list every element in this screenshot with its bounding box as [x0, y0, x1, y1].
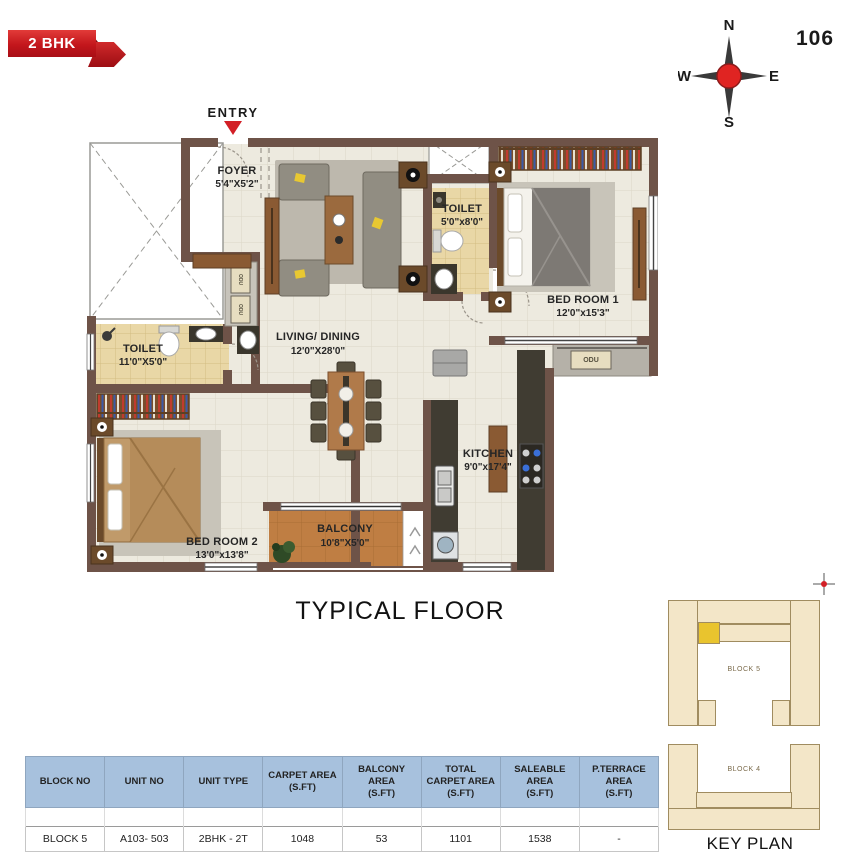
key-plan-block-4: BLOCK 4: [668, 744, 830, 830]
bhk-ribbon-badge: 2 BHK: [8, 30, 96, 57]
header-unit-no: UNIT NO: [105, 757, 184, 808]
key-plan: BLOCK 5 BLOCK 4 KEY PLAN: [660, 572, 864, 862]
compass-center-dot: [717, 64, 741, 88]
key-plan-compass-icon: [812, 572, 836, 596]
cell-saleable-area: 1538: [500, 827, 579, 852]
header-unit-type: UNIT TYPE: [184, 757, 263, 808]
room-dims-toilet-1: 5'0"x8'0": [441, 217, 483, 228]
room-dims-balcony: 10'8"X5'0": [321, 538, 370, 549]
header-total-carpet-area: TOTAL CARPET AREA (S.FT): [421, 757, 500, 808]
area-table-header-row: BLOCK NO UNIT NO UNIT TYPE CARPET AREA (…: [26, 757, 659, 808]
room-label-bedroom-2: BED ROOM 2: [186, 536, 258, 548]
key-plan-block-5: BLOCK 5: [668, 600, 830, 732]
room-dims-bedroom-2: 13'0"x13'8": [195, 550, 248, 561]
room-dims-living-dining: 12'0"X28'0": [291, 346, 345, 357]
compass-n-label: N: [724, 17, 735, 34]
entry-arrow-icon: [224, 121, 242, 135]
page-number: 106: [796, 27, 834, 51]
room-dims-toilet-2: 11'0"X5'0": [119, 357, 167, 368]
header-balcony-area: BALCONY AREA (S.FT): [342, 757, 421, 808]
room-label-living-dining: LIVING/ DINING: [276, 331, 360, 343]
entry-label: ENTRY: [198, 105, 268, 120]
room-label-toilet-1: TOILET: [442, 203, 482, 215]
header-saleable-area: SALEABLE AREA (S.FT): [500, 757, 579, 808]
compass-w-label: W: [678, 68, 692, 85]
cell-balcony-area: 53: [342, 827, 421, 852]
cell-pterrace-area: -: [579, 827, 658, 852]
bhk-ribbon-label: 2 BHK: [28, 35, 76, 52]
floor-plan-page: { "badge": { "label": "2 BHK" }, "page_n…: [0, 0, 864, 864]
compass-s-label: S: [724, 114, 734, 128]
key-plan-title: KEY PLAN: [660, 834, 840, 854]
room-label-balcony: BALCONY: [317, 523, 373, 535]
room-dims-foyer: 5'4"X5'2": [215, 179, 258, 190]
room-label-kitchen: KITCHEN: [463, 448, 513, 460]
cell-unit-no: A103- 503: [105, 827, 184, 852]
compass-rose: N S W E: [678, 16, 780, 128]
cell-block-no: BLOCK 5: [26, 827, 105, 852]
area-table-data-row: BLOCK 5 A103- 503 2BHK - 2T 1048 53 1101…: [26, 827, 659, 852]
odu-unit-label-2: ODU: [227, 300, 254, 319]
odu-unit-label-3: ODU: [571, 351, 611, 369]
cell-total-carpet-area: 1101: [421, 827, 500, 852]
header-carpet-area: CARPET AREA (S.FT): [263, 757, 342, 808]
header-pterrace-area: P.TERRACE AREA (S.FT): [579, 757, 658, 808]
cell-carpet-area: 1048: [263, 827, 342, 852]
room-label-bedroom-1: BED ROOM 1: [547, 294, 619, 306]
cell-unit-type: 2BHK - 2T: [184, 827, 263, 852]
room-label-toilet-2: TOILET: [123, 343, 163, 355]
key-plan-block4-label: BLOCK 4: [704, 766, 784, 773]
room-dims-kitchen: 9'0"x17'4": [464, 462, 512, 473]
room-label-foyer: FOYER: [218, 165, 257, 177]
compass-e-label: E: [769, 68, 779, 85]
room-dims-bedroom-1: 12'0"x15'3": [556, 308, 609, 319]
floor-title: TYPICAL FLOOR: [160, 597, 640, 626]
key-plan-highlighted-unit: [698, 622, 720, 644]
odu-unit-label-1: ODU: [227, 270, 254, 289]
area-table: BLOCK NO UNIT NO UNIT TYPE CARPET AREA (…: [25, 756, 659, 852]
area-table-spacer-row: [26, 808, 659, 827]
key-plan-block5-label: BLOCK 5: [704, 666, 784, 673]
header-block-no: BLOCK NO: [26, 757, 105, 808]
